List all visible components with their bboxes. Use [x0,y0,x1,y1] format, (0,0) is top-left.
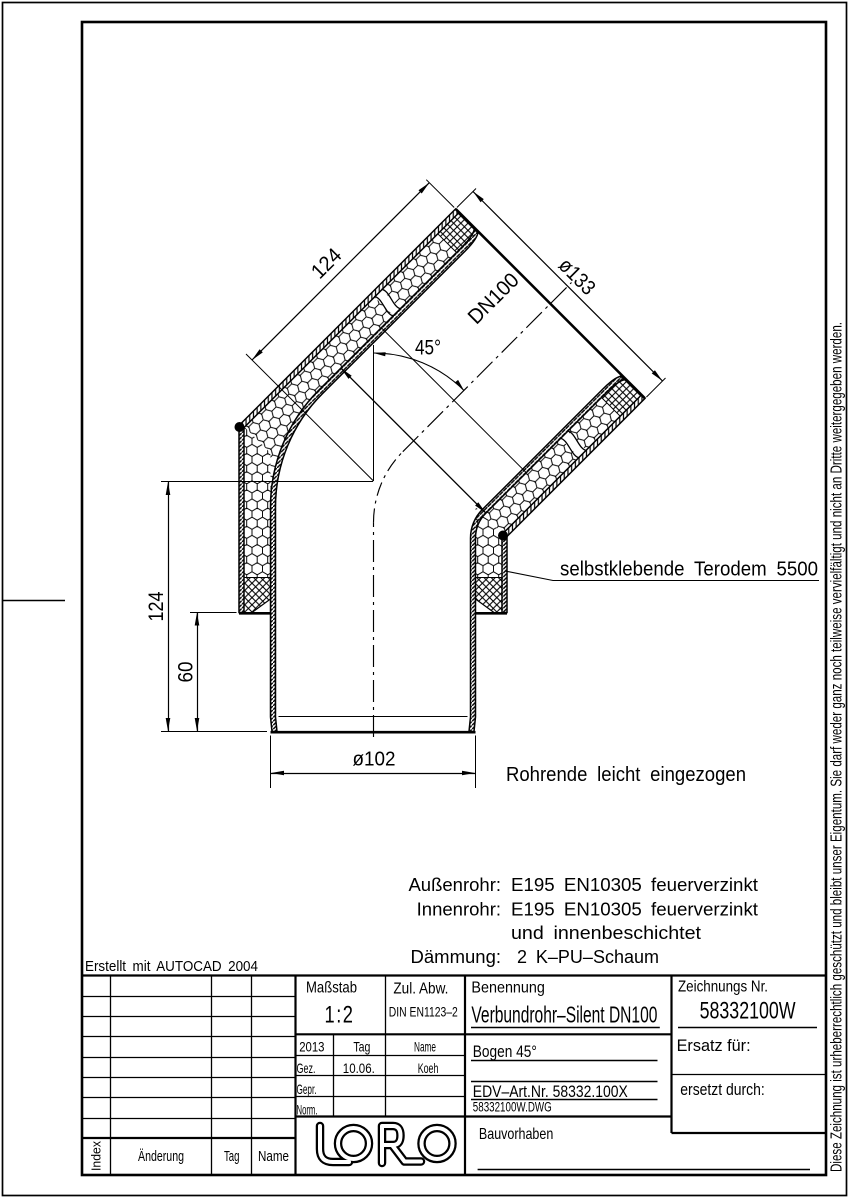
svg-text:Name: Name [258,1149,289,1165]
svg-text:Koeh: Koeh [418,1060,439,1076]
svg-text:1:2: 1:2 [325,1001,355,1028]
svg-text:2 K–PU–Schaum: 2 K–PU–Schaum [517,946,659,967]
svg-text:ø102: ø102 [353,749,396,771]
svg-text:10.06.: 10.06. [343,1060,375,1076]
svg-text:Maßstab: Maßstab [306,980,357,997]
svg-text:Benennung: Benennung [471,980,545,997]
svg-text:Zeichnungs Nr.: Zeichnungs Nr. [678,979,768,996]
svg-text:E195 EN10305 feuerverzinkt: E195 EN10305 feuerverzinkt [511,874,758,895]
svg-text:Tag: Tag [224,1149,240,1165]
svg-text:124: 124 [307,244,347,284]
svg-text:E195 EN10305 feuerverzinkt: E195 EN10305 feuerverzinkt [511,899,758,920]
svg-text:Verbundrohr–Silent DN100: Verbundrohr–Silent DN100 [471,1001,657,1027]
svg-text:45°: 45° [415,337,441,360]
svg-text:DN100: DN100 [464,269,524,329]
svg-text:Außenrohr:: Außenrohr: [408,874,501,895]
svg-text:60: 60 [174,661,198,682]
svg-text:Norm.: Norm. [297,1102,318,1118]
svg-text:Erstellt mit AUTOCAD 2004: Erstellt mit AUTOCAD 2004 [85,959,258,975]
svg-text:58332100W: 58332100W [700,998,796,1025]
svg-text:Gepr.: Gepr. [297,1081,317,1097]
svg-text:Zul. Abw.: Zul. Abw. [393,981,448,998]
svg-text:Diese Zeichnung ist urheberrec: Diese Zeichnung ist urheberrechtlich ges… [829,322,846,1172]
svg-text:Ersatz für:: Ersatz für: [677,1036,751,1055]
svg-text:Rohrende leicht eingezogen: Rohrende leicht eingezogen [506,764,746,786]
svg-text:und innenbeschichtet: und innenbeschichtet [511,922,701,943]
svg-text:Änderung: Änderung [138,1148,184,1165]
svg-text:Bogen 45°: Bogen 45° [473,1042,537,1061]
svg-text:Index: Index [89,1141,104,1171]
svg-text:ersetzt durch:: ersetzt durch: [680,1080,765,1099]
svg-text:58332100W.DWG: 58332100W.DWG [473,1100,552,1115]
svg-text:EDV–Art.Nr. 58332.100X: EDV–Art.Nr. 58332.100X [473,1082,628,1101]
svg-text:selbstklebende Terodem 5500: selbstklebende Terodem 5500 [560,559,818,581]
svg-text:Innenrohr:: Innenrohr: [417,899,501,920]
svg-text:Name: Name [414,1038,436,1054]
svg-text:Tag: Tag [353,1038,370,1054]
svg-text:Gez.: Gez. [297,1060,316,1076]
svg-text:124: 124 [144,591,168,621]
svg-text:Dämmung:: Dämmung: [411,946,501,967]
svg-text:Bauvorhaben: Bauvorhaben [479,1126,553,1143]
svg-text:DIN EN1123–2: DIN EN1123–2 [389,1003,458,1019]
svg-text:2013: 2013 [299,1038,324,1054]
